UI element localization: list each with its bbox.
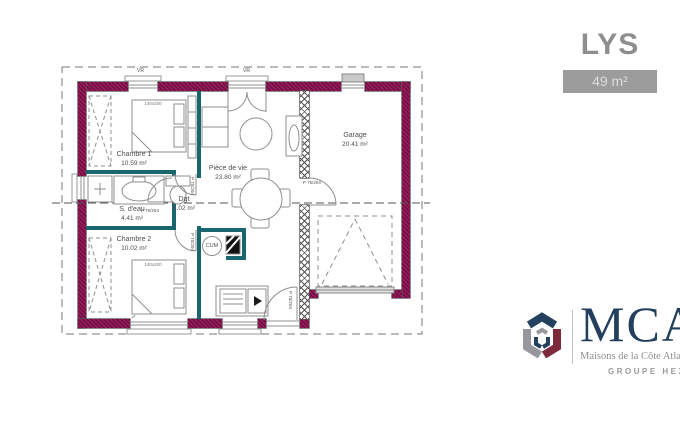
wall-segment bbox=[266, 82, 341, 91]
wall-segment bbox=[392, 290, 402, 298]
wall-segment bbox=[300, 319, 309, 328]
shutter-label: VR bbox=[243, 69, 250, 74]
door-label: P 75/204 bbox=[288, 291, 293, 309]
door-label: P 75/204 bbox=[141, 208, 159, 213]
page-title: LYS bbox=[563, 28, 657, 62]
brand-logo-text: MCA bbox=[580, 299, 680, 349]
window-kitchen bbox=[219, 322, 261, 334]
shutter-label: VR bbox=[137, 69, 144, 74]
brand-group-label: GROUPE HEXAOM bbox=[608, 367, 680, 376]
room-name: Garage bbox=[325, 132, 385, 141]
room-name: Dgt bbox=[163, 196, 205, 205]
water-heater-label: CUM bbox=[202, 243, 222, 249]
partition-wall bbox=[201, 228, 246, 232]
roof-overhang-outline bbox=[62, 67, 422, 334]
mca-cube-icon bbox=[516, 310, 568, 364]
wall-segment bbox=[78, 200, 86, 328]
area-badge: 49 m² bbox=[563, 70, 657, 93]
garage-partition-wall bbox=[300, 205, 309, 319]
partition-wall bbox=[86, 226, 176, 230]
floor-plan-page: Chambre 1 10.59 m² S. d'eau 4.41 m² Dgt … bbox=[0, 0, 680, 425]
window-entry-top bbox=[226, 76, 268, 88]
window-chambre1 bbox=[125, 76, 161, 88]
wall-segment bbox=[402, 82, 410, 298]
room-label-garage: Garage 20.41 m² bbox=[325, 132, 385, 149]
entry-threshold bbox=[266, 321, 300, 326]
room-area: 4.41 m² bbox=[103, 215, 161, 224]
room-name: Pièce de vie bbox=[197, 165, 259, 174]
logo-divider bbox=[572, 310, 573, 364]
door-label: P 75/204 bbox=[190, 177, 195, 195]
garage-vent bbox=[341, 74, 365, 88]
wall-segment bbox=[188, 319, 222, 328]
technical-unit bbox=[226, 236, 240, 254]
room-area: 10.02 m² bbox=[104, 245, 164, 254]
bed-size-label: 140x200 bbox=[132, 262, 174, 267]
partition-wall bbox=[172, 174, 176, 180]
garage-partition-wall bbox=[300, 91, 309, 178]
partition-wall bbox=[226, 256, 246, 260]
room-label-piece-de-vie: Pièce de vie 23.80 m² bbox=[197, 165, 259, 182]
window-sdeau bbox=[72, 174, 84, 202]
brand-subtitle: Maisons de la Côte Atlantique bbox=[580, 351, 680, 362]
wall-segment bbox=[78, 82, 86, 176]
room-label-dgt: Dgt 1.02 m² bbox=[163, 196, 205, 213]
window-chambre2 bbox=[127, 306, 191, 334]
partition-wall bbox=[86, 170, 176, 174]
entry-recess bbox=[228, 91, 266, 112]
room-area: 10.59 m² bbox=[105, 160, 163, 169]
room-name: Chambre 2 bbox=[104, 236, 164, 245]
room-area: 23.80 m² bbox=[197, 174, 259, 183]
wall-segment bbox=[78, 319, 130, 328]
partition-wall bbox=[197, 226, 201, 319]
room-name: Chambre 1 bbox=[105, 151, 163, 160]
room-area: 20.41 m² bbox=[325, 141, 385, 150]
shelf-chambre1 bbox=[188, 96, 196, 158]
room-area: 1.02 m² bbox=[163, 205, 205, 214]
wall-segment bbox=[309, 290, 318, 298]
bed-chambre2 bbox=[132, 260, 186, 314]
kitchen-counter-bottom bbox=[216, 286, 268, 316]
washbasin bbox=[114, 176, 164, 204]
door-label: P 75/204 bbox=[190, 233, 195, 251]
plan-linework bbox=[0, 0, 680, 425]
wall-segment bbox=[158, 82, 228, 91]
room-label-chambre1: Chambre 1 10.59 m² bbox=[105, 151, 163, 168]
kitchen-cabinets-left bbox=[202, 107, 228, 147]
shower-unit bbox=[88, 176, 112, 202]
bed-chambre1 bbox=[132, 100, 186, 152]
door-label: P 75/204 bbox=[303, 180, 321, 185]
wall-segment bbox=[258, 319, 266, 328]
room-label-chambre2: Chambre 2 10.02 m² bbox=[104, 236, 164, 253]
garage-door bbox=[316, 216, 394, 293]
bed-size-label: 140x200 bbox=[132, 101, 174, 106]
round-rug bbox=[240, 118, 272, 150]
